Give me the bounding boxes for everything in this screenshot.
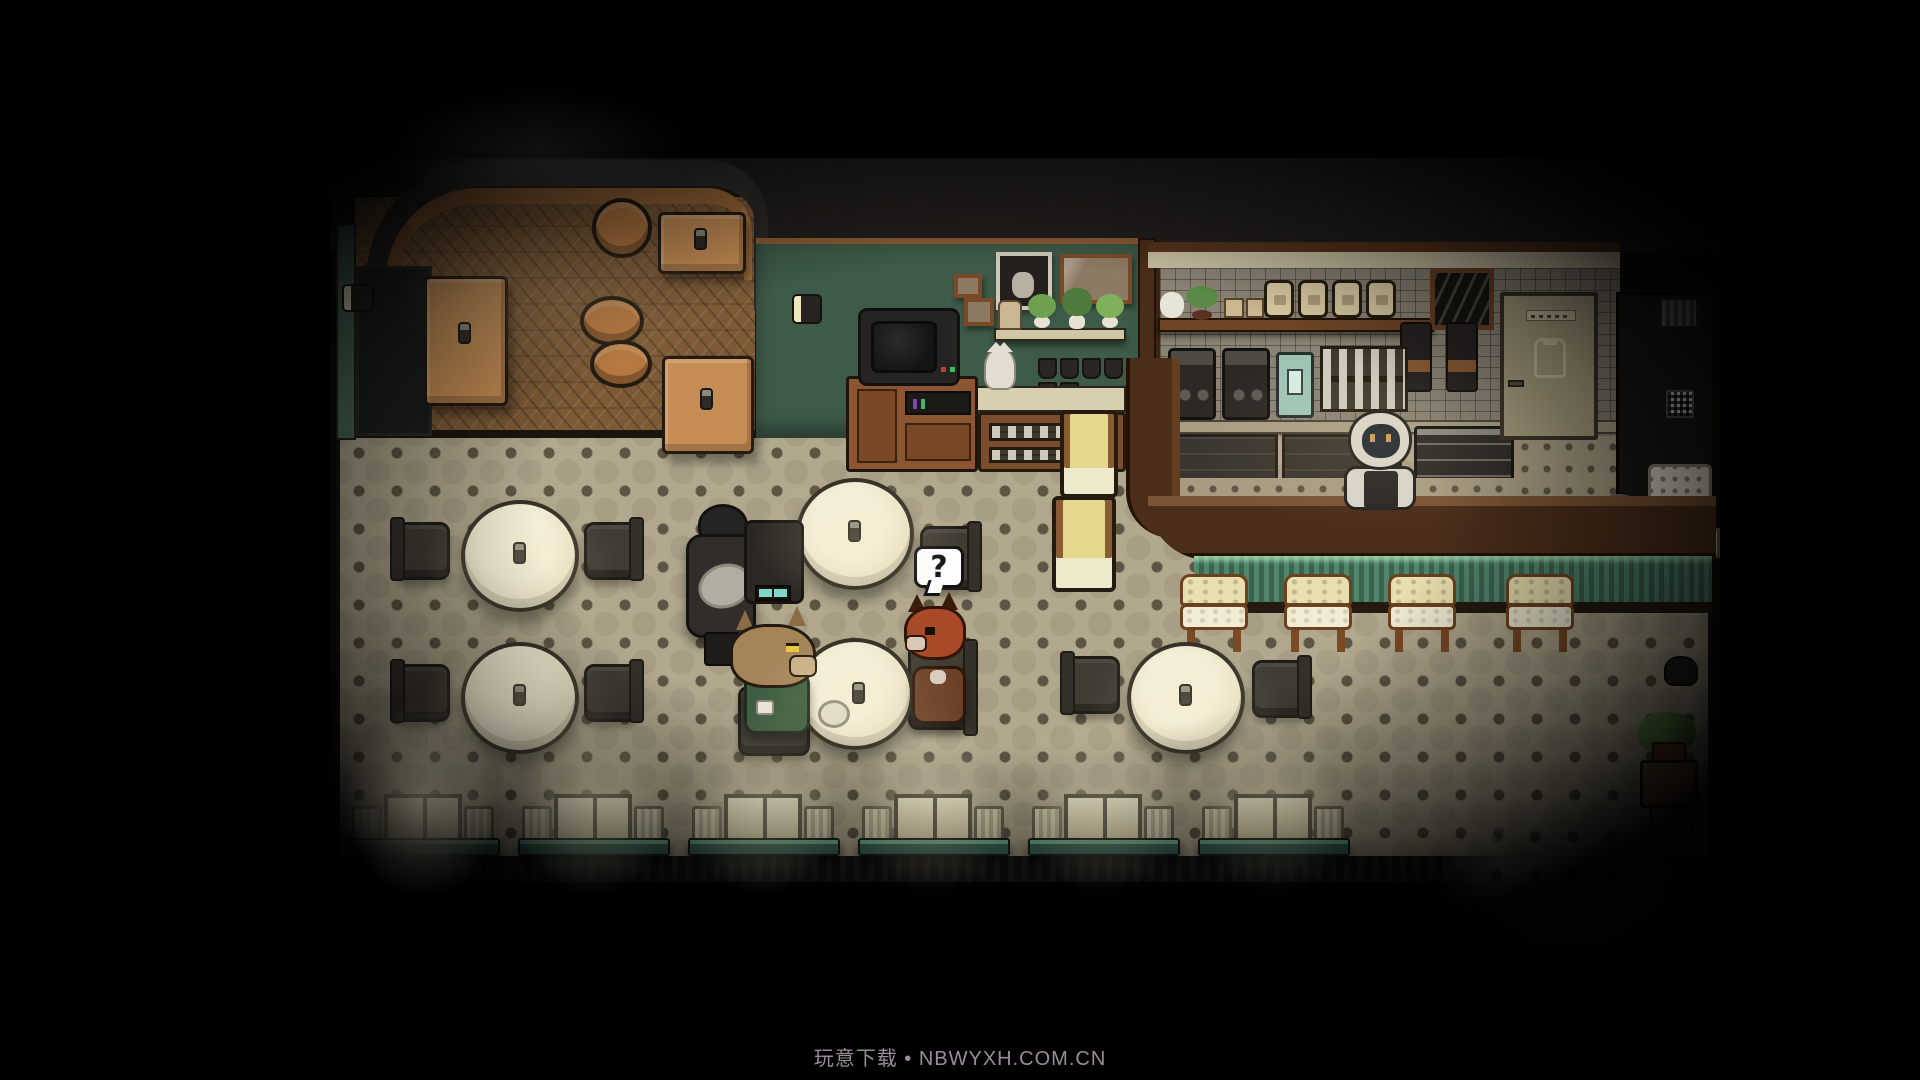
potted-plant: [1096, 294, 1124, 318]
fox-customer[interactable]: [902, 586, 974, 730]
oven: [1414, 426, 1514, 484]
tv-cabinet: [846, 376, 978, 472]
stool-legs: [1291, 630, 1345, 652]
cafe-chair: [396, 664, 450, 722]
qr-code: [1666, 390, 1694, 418]
crt-tv: [858, 308, 960, 386]
stacked-chair: [1060, 410, 1118, 498]
cabinet-door: [857, 389, 897, 463]
small-picture-frame: [964, 298, 994, 326]
coffee-mug: [1038, 358, 1057, 379]
watermark: 玩意下载 • NBWYXH.COM.CN: [0, 1042, 1920, 1071]
wolf-head: [730, 624, 816, 688]
wall-lamp: [342, 284, 374, 312]
fox-eye: [925, 627, 935, 635]
left-wall: [336, 224, 356, 440]
window-bench: [518, 838, 670, 856]
bar-top-shelf: [1158, 318, 1434, 332]
potted-plant: [1186, 286, 1218, 308]
photo-highlight: [1012, 272, 1034, 298]
game-viewport[interactable]: ? 玩意下载 • NBWYXH.COM.: [0, 0, 1920, 1080]
watermark-text: 玩意下载 • NBWYXH.COM.CN: [814, 1048, 1107, 1070]
fox-chest-patch: [930, 670, 946, 684]
coffee-grinder: [1446, 322, 1478, 392]
bar-stool: [1506, 574, 1574, 652]
white-flowers: [1160, 292, 1184, 318]
stool-legs: [1513, 630, 1567, 652]
cafe-chair: [396, 522, 450, 580]
plant-stand: [1640, 760, 1698, 808]
camera-device-chair: [744, 520, 804, 604]
stool-back: [1284, 574, 1352, 606]
kettle: [1664, 656, 1698, 686]
stool-legs: [1395, 630, 1449, 652]
salt-shaker: [694, 228, 707, 250]
cabinet-drawer: [905, 423, 971, 461]
figurine: [998, 300, 1022, 330]
stool-back: [1180, 574, 1248, 606]
vcr-player: [905, 391, 971, 415]
water-dispenser: [1276, 352, 1314, 418]
teal-screen: [755, 585, 791, 601]
stool-seat: [1506, 604, 1574, 630]
wooden-box: [1224, 298, 1244, 318]
cafe-chair: [584, 664, 638, 722]
potted-plant: [1062, 288, 1092, 316]
screen-cell: [759, 589, 772, 597]
plate: [818, 700, 850, 728]
coffee-mug: [1060, 358, 1079, 379]
salt-shaker: [700, 388, 713, 410]
question-bubble[interactable]: ?: [914, 546, 964, 588]
bar-stool: [1284, 574, 1352, 652]
wolf-customer[interactable]: [726, 600, 822, 740]
stool-back: [1388, 574, 1456, 606]
potted-plant: [1028, 294, 1056, 318]
cafe-chair: [1252, 660, 1306, 718]
espresso-machine: [1222, 348, 1270, 420]
door-handle: [1508, 380, 1524, 387]
stool-seat: [1284, 604, 1352, 630]
tv-screen: [871, 321, 937, 373]
small-picture-frame: [954, 274, 982, 298]
menu-board: [1430, 268, 1494, 330]
tv-indicator-lights: [941, 367, 955, 372]
wall-lamp: [792, 294, 822, 324]
window-bench: [348, 838, 500, 856]
glass-shelf-unit: [1320, 346, 1408, 412]
salt-shaker: [458, 322, 471, 344]
vent-panel: [1660, 298, 1698, 328]
bar-stool: [1180, 574, 1248, 652]
bar-beam: [1148, 242, 1620, 252]
question-bubble-text: ?: [930, 550, 947, 585]
entry-floor-patch: [1440, 818, 1700, 968]
fox-muzzle: [905, 635, 927, 652]
bar-stool: [1388, 574, 1456, 652]
door-sign: [1526, 310, 1576, 321]
salt-shaker: [1179, 684, 1192, 706]
coffee-cup: [756, 700, 774, 715]
window-bench: [1028, 838, 1180, 856]
barista-face: [1362, 424, 1400, 458]
bar-soffit: [1148, 252, 1620, 268]
round-wooden-chair: [592, 198, 652, 258]
barista-vest: [1364, 471, 1398, 509]
window-bench: [688, 838, 840, 856]
coffee-mug: [1082, 358, 1101, 379]
coffee-canister: [1366, 280, 1396, 318]
cafe-chair: [584, 522, 638, 580]
wolf-muzzle: [789, 655, 817, 677]
salt-shaker: [513, 542, 526, 564]
lucky-cat-figurine: [984, 348, 1016, 390]
stool-seat: [1180, 604, 1248, 630]
coffee-canister: [1264, 280, 1294, 318]
dispenser-window: [1287, 369, 1303, 395]
round-wooden-chair: [590, 340, 652, 388]
cafe-chair: [1066, 656, 1120, 714]
barista-eye: [1370, 434, 1375, 442]
wolf-ear: [788, 606, 806, 626]
bar-counter: [1148, 496, 1716, 560]
screen-cell: [774, 589, 787, 597]
staff-door[interactable]: [1500, 292, 1598, 440]
window-bench: [1198, 838, 1350, 856]
pepper-shaker: [852, 682, 865, 704]
window-bench: [858, 838, 1010, 856]
apron-icon: [1534, 338, 1566, 378]
coffee-mug: [1104, 358, 1123, 379]
salt-shaker: [513, 684, 526, 706]
stacked-chair: [1052, 496, 1116, 592]
barista-body: [1344, 466, 1416, 510]
wolf-eye: [786, 643, 799, 652]
fox-head: [904, 606, 966, 660]
round-wooden-chair: [580, 296, 644, 346]
cat-ear: [995, 342, 1013, 352]
wooden-box: [1246, 298, 1264, 318]
coffee-canister: [1298, 280, 1328, 318]
barista[interactable]: [1340, 410, 1420, 510]
coffee-canister: [1332, 280, 1362, 318]
stool-seat: [1388, 604, 1456, 630]
stool-back: [1506, 574, 1574, 606]
salt-shaker: [848, 520, 861, 542]
barista-eye: [1386, 434, 1391, 442]
